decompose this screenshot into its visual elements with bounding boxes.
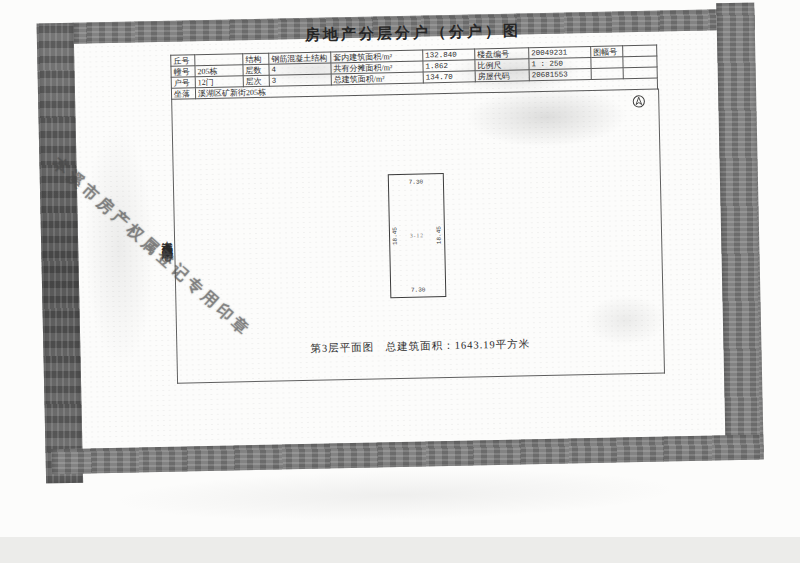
unit-number-label: 3-12	[390, 232, 444, 239]
cell-value	[591, 68, 623, 80]
cell-label: 幢号	[171, 66, 195, 78]
scan-smudge	[114, 464, 675, 526]
cell-value	[623, 56, 657, 68]
photocopy-edge-right	[716, 3, 763, 454]
cell-label: 户号	[171, 77, 195, 89]
cell-label: 图幅号	[591, 46, 623, 58]
dimension-bottom: 7.30	[391, 286, 445, 294]
cell-value	[623, 67, 657, 79]
cell-label: 结构	[243, 53, 269, 65]
unit-outline: 7.30 7.30 18.45 18.45 3-12	[388, 173, 447, 298]
cell-value	[591, 57, 623, 69]
cell-value	[623, 45, 657, 57]
photocopy-edge-bottom	[51, 434, 763, 474]
dimension-top: 7.30	[389, 178, 443, 186]
cell-label: 层数	[243, 64, 269, 76]
cell-label: 层次	[243, 75, 269, 87]
photocopy-edge-left	[37, 23, 84, 484]
scanned-document: 房地产分层分户（分户）图 丘号 结构 钢筋混凝土结构 套内建筑面积/m² 132…	[0, 0, 800, 563]
cell-label: 丘号	[171, 55, 195, 67]
compass-north-icon	[632, 95, 645, 108]
